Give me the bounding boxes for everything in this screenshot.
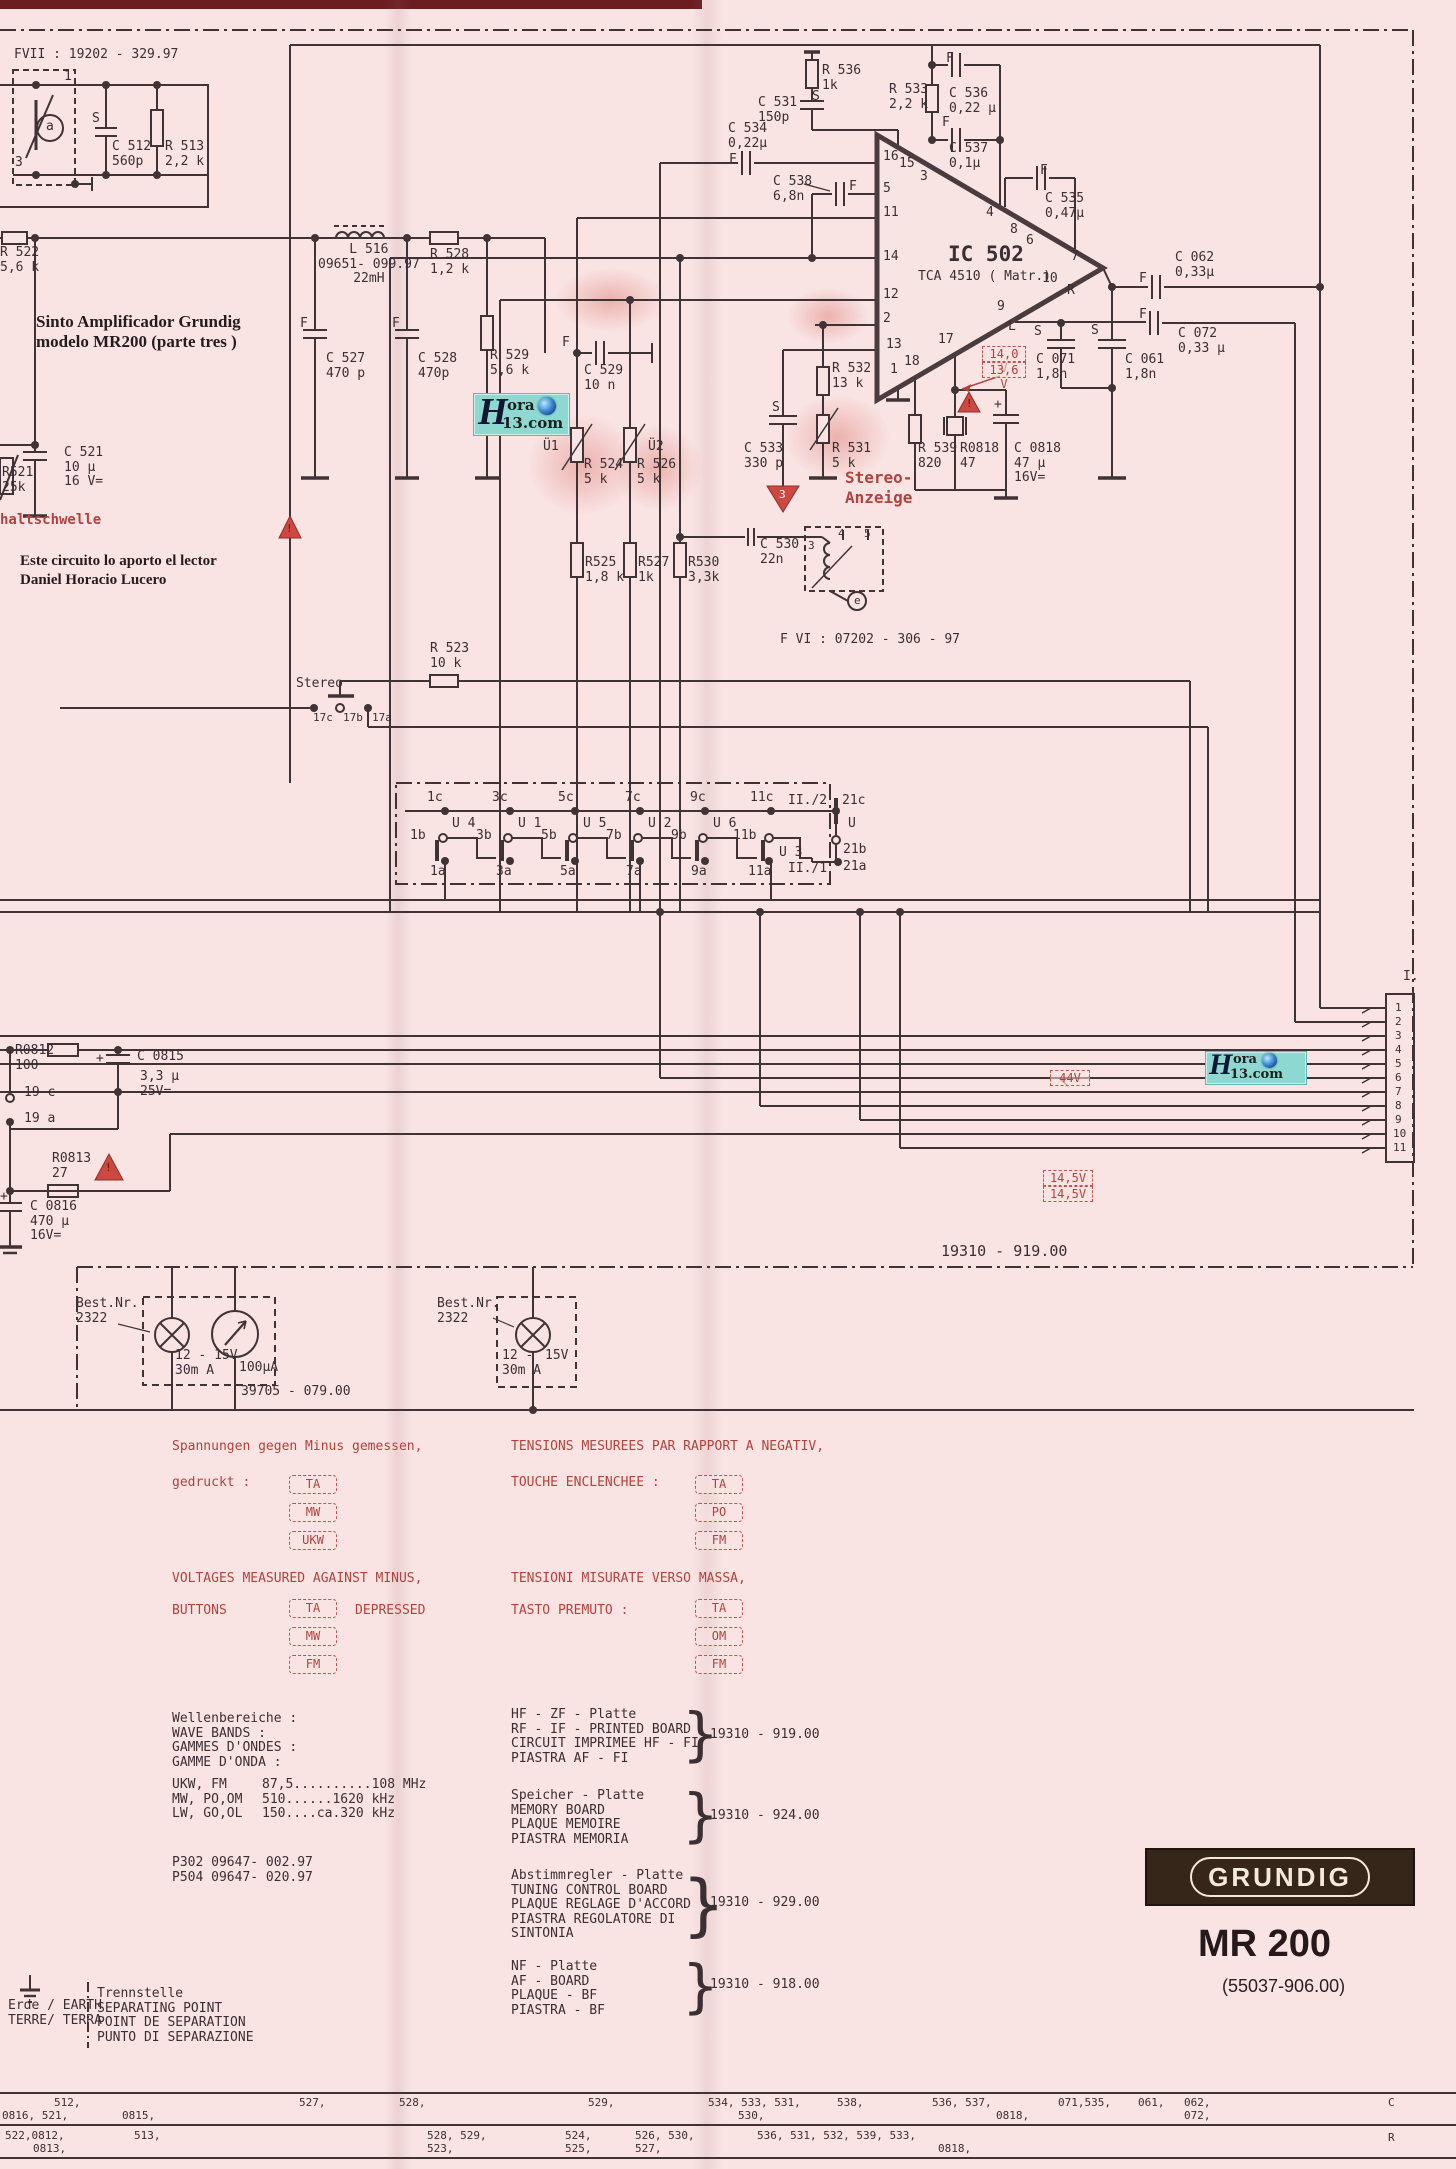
- contact-9b: 9b: [671, 829, 687, 844]
- index-0818: 0818,: [996, 2110, 1029, 2122]
- index-530: 530,: [738, 2110, 765, 2122]
- button-po-fr: PO: [695, 1503, 743, 1522]
- label-plus-c0818: +: [994, 398, 1002, 413]
- contact-17a: 17a: [372, 712, 392, 724]
- button-ukw-de: UKW: [289, 1531, 337, 1550]
- contact-1a: 1a: [430, 865, 446, 880]
- label-f-c537: F: [942, 116, 950, 131]
- index-528: 528,: [399, 2097, 426, 2109]
- label-wellenbereiche: Wellenbereiche : WAVE BANDS : GAMMES D'O…: [172, 1712, 297, 1770]
- note-buttons: BUTTONS: [172, 1604, 227, 1619]
- label-u3: U 3: [779, 846, 802, 861]
- label-fvi: F VI : 07202 - 306 - 97: [780, 633, 960, 648]
- label-c527: C 527 470 p: [326, 352, 365, 381]
- connector-pin-10: 10: [1393, 1128, 1406, 1140]
- pin-12: 12: [883, 288, 899, 303]
- label-u1: Ü1: [543, 440, 559, 455]
- pin-13: 13: [886, 338, 902, 353]
- label-bestnr-2: Best.Nr. 2322: [437, 1297, 500, 1326]
- label-c528: C 528 470p: [418, 352, 457, 381]
- label-trennstelle: Trennstelle SEPARATING POINT POINT DE SE…: [97, 1987, 254, 2045]
- button-ta-en: TA: [289, 1599, 337, 1618]
- contact-17b: 17b: [343, 712, 363, 724]
- pin-l: L: [1008, 320, 1016, 335]
- contact-5c: 5c: [558, 791, 574, 806]
- index-534-533-531: 534, 533, 531,: [708, 2097, 801, 2109]
- label-s-c533: S: [772, 401, 780, 416]
- label-pot-pin1: 1: [64, 70, 72, 85]
- warning-triangle-exclamation-2: !: [105, 1162, 112, 1174]
- pin-3: 3: [920, 170, 928, 185]
- index-536-537: 536, 537,: [932, 2097, 992, 2109]
- model-mr200: MR 200: [1198, 1924, 1331, 1964]
- note-tasto: TASTO PREMUTO :: [511, 1604, 628, 1619]
- label-c0815-value: 3,3 µ 25V=: [140, 1070, 179, 1099]
- label-f-c536-top: F: [946, 52, 954, 67]
- grundig-logo: GRUNDIG: [1145, 1848, 1415, 1906]
- watermark-globe-icon-2: [1262, 1053, 1277, 1068]
- note-depressed: DEPRESSED: [355, 1604, 425, 1619]
- label-s-r536: S: [812, 90, 820, 105]
- connector-pin-6: 6: [1395, 1072, 1402, 1084]
- warning-triangle-exclamation: !: [966, 398, 973, 410]
- label-c535: C 535 0,47µ: [1045, 192, 1084, 221]
- label-f-c535: F: [1040, 164, 1048, 179]
- contact-1b: 1b: [410, 829, 426, 844]
- junction-dots: [6, 61, 1324, 1414]
- button-om-it: OM: [695, 1627, 743, 1646]
- index-0818-b: 0818,: [938, 2143, 971, 2155]
- pin-1: 1: [890, 363, 898, 378]
- label-fvii: FVII : 19202 - 329.97: [14, 48, 178, 63]
- index-071-535: 071,535,: [1058, 2097, 1111, 2109]
- contact-21b: 21b: [843, 843, 866, 858]
- pin-s: S: [1034, 325, 1042, 340]
- contact-9c: 9c: [690, 791, 706, 806]
- label-c0818: C 0818 47 µ 16V=: [1014, 442, 1061, 486]
- label-u2: Ü2: [648, 440, 664, 455]
- wires: [0, 45, 1456, 2158]
- label-u2-switch: U 2: [648, 817, 671, 832]
- connector-pin-1: 1: [1395, 1002, 1402, 1014]
- watermark-ora: ora: [507, 396, 535, 414]
- label-f-c534: F: [729, 153, 737, 168]
- label-r527: R527 1k: [638, 556, 669, 585]
- note-gedruckt: gedruckt :: [172, 1476, 250, 1491]
- label-r531: R 531 5 k: [832, 442, 871, 471]
- voltage-14-5-b: 14,5V: [1043, 1186, 1093, 1202]
- label-bands: UKW, FM MW, PO,OM LW, GO,OL: [172, 1778, 242, 1822]
- index-072: 072,: [1184, 2110, 1211, 2122]
- index-r: R: [1388, 2132, 1395, 2144]
- label-trafo-e: e: [854, 595, 861, 607]
- pin-18: 18: [904, 355, 920, 370]
- label-c530: C 530 22n: [760, 538, 799, 567]
- label-39705: 39705 - 079.00: [241, 1385, 351, 1400]
- index-527-b: 527,: [635, 2143, 662, 2155]
- label-r521: R521 25k: [2, 466, 33, 495]
- watermark-hora13-1: H ora 13.com: [473, 393, 570, 436]
- button-ta-de: TA: [289, 1475, 337, 1494]
- pin-11: 11: [883, 206, 899, 221]
- label-n924: 19310 - 924.00: [710, 1809, 820, 1824]
- watermark-h-2: H: [1209, 1048, 1232, 1082]
- pin-6: 6: [1026, 234, 1034, 249]
- index-522-0812: 522,0812,: [5, 2130, 65, 2142]
- index-526-530: 526, 530,: [635, 2130, 695, 2142]
- label-speicher-platte: Speicher - Platte MEMORY BOARD PLAQUE ME…: [511, 1789, 644, 1847]
- note-tensioni: TENSIONI MISURATE VERSO MASSA,: [511, 1572, 746, 1587]
- warning-triangle-exclamation-3: !: [286, 523, 293, 535]
- label-r0813: R0813 27: [52, 1152, 91, 1181]
- note-touche: TOUCHE ENCLENCHEE :: [511, 1476, 660, 1491]
- index-513: 513,: [134, 2130, 161, 2142]
- label-n918: 19310 - 918.00: [710, 1978, 820, 1993]
- label-c0815: C 0815: [137, 1050, 184, 1065]
- note-tensions: TENSIONS MESUREES PAR RAPPORT A NEGATIV,: [511, 1440, 824, 1455]
- pin-17: 17: [938, 333, 954, 348]
- label-r529: R 529 5,6 k: [490, 349, 529, 378]
- connector-pin-4: 4: [1395, 1044, 1402, 1056]
- label-hf-zf-platte: HF - ZF - Platte RF - IF - PRINTED BOARD…: [511, 1708, 699, 1766]
- label-r0818: R0818 47: [960, 442, 999, 471]
- label-r522: R 522 5,6 k: [0, 246, 39, 275]
- label-c529: C 529 10 n: [584, 364, 623, 393]
- label-band-freqs: 87,5..........108 MHz 510......1620 kHz …: [262, 1778, 426, 1822]
- label-r0812: R0812 100: [15, 1044, 54, 1073]
- contact-11c: 11c: [750, 791, 773, 806]
- connector-pin-2: 2: [1395, 1016, 1402, 1028]
- label-trafo-3: 3: [808, 540, 815, 552]
- note-sinto-amplificador: Sinto Amplificador Grundig modelo MR200 …: [36, 312, 241, 352]
- connector-pin-8: 8: [1395, 1100, 1402, 1112]
- label-pot-pin3: 3: [15, 156, 23, 171]
- index-0813: 0813,: [33, 2143, 66, 2155]
- label-pot-s: S: [92, 112, 100, 127]
- index-523: 523,: [427, 2143, 454, 2155]
- contact-3a: 3a: [496, 865, 512, 880]
- contact-11b: 11b: [733, 829, 756, 844]
- contact-7a: 7a: [626, 865, 642, 880]
- contact-5a: 5a: [560, 865, 576, 880]
- contact-11a: 11a: [748, 865, 771, 880]
- label-c072: C 072 0,33 µ: [1178, 327, 1225, 356]
- pin-10: 10: [1042, 272, 1058, 287]
- watermark-globe-icon: [538, 397, 556, 415]
- label-c0816: C 0816 470 µ 16V=: [30, 1200, 77, 1244]
- pin-16: 16: [883, 150, 899, 165]
- label-r533: R 533 2,2 k: [889, 83, 928, 112]
- label-f-c072: F: [1139, 308, 1147, 323]
- contact-7b: 7b: [606, 829, 622, 844]
- contact-3b: 3b: [476, 829, 492, 844]
- label-r539: R 539 820: [918, 442, 957, 471]
- label-r528: R 528 1,2 k: [430, 248, 469, 277]
- label-s-c061: S: [1091, 324, 1099, 339]
- connector-pin-9: 9: [1395, 1114, 1402, 1126]
- contact-3c: 3c: [492, 791, 508, 806]
- label-lamp1-rating: 12 - 15V 30m A: [175, 1349, 238, 1378]
- button-mw-en: MW: [289, 1627, 337, 1646]
- index-529: 529,: [588, 2097, 615, 2109]
- button-fm-fr: FM: [695, 1531, 743, 1550]
- grundig-logo-text: GRUNDIG: [1190, 1857, 1370, 1897]
- label-f-c529: F: [562, 336, 570, 351]
- label-stereo-anzeige: Stereo- Anzeige: [845, 468, 912, 508]
- contact-9a: 9a: [691, 865, 707, 880]
- label-l516: L 516 09651- 099.97 22mH: [318, 243, 420, 287]
- pin-r: R: [1067, 284, 1075, 299]
- pin-7: 7: [1071, 250, 1079, 265]
- voltage-14-5-a: 14,5V: [1043, 1170, 1093, 1186]
- index-512: 512,: [54, 2097, 81, 2109]
- connector-pin-7: 7: [1395, 1086, 1402, 1098]
- pin-5: 5: [883, 182, 891, 197]
- voltage-14-0: 14,0 V: [982, 346, 1026, 362]
- label-n929: 19310 - 929.00: [710, 1896, 820, 1911]
- label-c521: C 521 10 µ 16 V=: [64, 446, 103, 490]
- watermark-ora-2: ora: [1233, 1052, 1257, 1067]
- watermark-site-2: 13.com: [1230, 1067, 1283, 1082]
- label-connector-i: I.: [1403, 970, 1419, 985]
- label-f-c528: F: [392, 317, 400, 332]
- watermark-site: 13.com: [502, 414, 563, 432]
- pin-14: 14: [883, 250, 899, 265]
- label-trafo-4: 4: [838, 528, 845, 540]
- contact-5b: 5b: [541, 829, 557, 844]
- connector-pin-5: 5: [1395, 1058, 1402, 1070]
- label-f-c062: F: [1139, 272, 1147, 287]
- label-trafo-5: 5: [864, 528, 871, 540]
- voltage-44: 44V: [1050, 1070, 1090, 1086]
- contact-19c: 19 c: [24, 1086, 55, 1101]
- contact-7c: 7c: [625, 791, 641, 806]
- index-528-529: 528, 529,: [427, 2130, 487, 2142]
- label-u-switch: U: [848, 817, 856, 832]
- index-061: 061,: [1138, 2097, 1165, 2109]
- button-mw-de: MW: [289, 1503, 337, 1522]
- label-r513: R 513 2,2 k: [165, 140, 204, 169]
- button-ta-fr: TA: [695, 1475, 743, 1494]
- button-fm-en: FM: [289, 1655, 337, 1674]
- label-c536: C 536 0,22 µ: [949, 87, 996, 116]
- label-c512: C 512 560p: [112, 140, 151, 169]
- label-plus-c0815: +: [96, 1052, 104, 1067]
- index-536-531-532: 536, 531, 532, 539, 533,: [757, 2130, 916, 2142]
- label-r523: R 523 10 k: [430, 642, 469, 671]
- label-ic502: IC 502: [948, 243, 1024, 265]
- label-c061: C 061 1,8n: [1125, 353, 1164, 382]
- connector-pin-3: 3: [1395, 1030, 1402, 1042]
- button-ta-it: TA: [695, 1599, 743, 1618]
- label-bestnr-1: Best.Nr. 2322: [76, 1297, 139, 1326]
- contact-21a: 21a: [843, 860, 866, 875]
- label-haltschwelle: haltschwelle: [0, 513, 101, 528]
- red-marks: [95, 376, 1068, 1180]
- voltage-13-6: 13,6 V: [982, 362, 1026, 378]
- label-u4: U 4: [452, 817, 475, 832]
- index-c: C: [1388, 2097, 1395, 2109]
- contact-17c: 17c: [313, 712, 333, 724]
- label-meter-100ua: 100µA: [239, 1361, 278, 1376]
- label-abstimmregler-platte: Abstimmregler - Platte TUNING CONTROL BO…: [511, 1869, 691, 1942]
- label-ic502-type: TCA 4510 ( Matr.): [918, 270, 1051, 285]
- index-062: 062,: [1184, 2097, 1211, 2109]
- label-r530: R530 3,3k: [688, 556, 719, 585]
- label-c538: C 538 6,8n: [773, 175, 812, 204]
- index-0816-521: 0816, 521,: [2, 2110, 68, 2122]
- note-spannungen: Spannungen gegen Minus gemessen,: [172, 1440, 422, 1455]
- pin-15: 15: [899, 157, 915, 172]
- contact-1c: 1c: [427, 791, 443, 806]
- label-n919-list: 19310 - 919.00: [710, 1728, 820, 1743]
- contact-19a: 19 a: [24, 1112, 55, 1127]
- label-c062: C 062 0,33µ: [1175, 251, 1214, 280]
- watermark-hora13-2: H ora 13.com: [1205, 1051, 1307, 1085]
- label-r536: R 536 1k: [822, 64, 861, 93]
- pin-9: 9: [997, 300, 1005, 315]
- label-ii-1: II./1: [788, 862, 827, 877]
- model-part-number: (55037-906.00): [1222, 1976, 1345, 1996]
- label-nf-platte: NF - Platte AF - BOARD PLAQUE - BF PIAST…: [511, 1960, 605, 2018]
- label-r526: R 526 5 k: [637, 458, 676, 487]
- index-527: 527,: [299, 2097, 326, 2109]
- pin-8: 8: [1010, 223, 1018, 238]
- button-fm-it: FM: [695, 1655, 743, 1674]
- note-voltages: VOLTAGES MEASURED AGAINST MINUS,: [172, 1572, 422, 1587]
- label-pot-a: a: [46, 120, 54, 135]
- label-c534: C 534 0,22µ: [728, 122, 767, 151]
- pin-2: 2: [883, 312, 891, 327]
- label-c071: C 071 1,8n: [1036, 353, 1075, 382]
- warning-triangle-3: 3: [779, 489, 786, 501]
- label-u1-switch: U 1: [518, 817, 541, 832]
- schematic-page: FVII : 19202 - 329.97 C 512 560p R 513 2…: [0, 0, 1456, 2169]
- label-lamp2-volt: 15V: [545, 1349, 568, 1364]
- label-erde: Erde / EARTH TERRE/ TERRA: [8, 1999, 102, 2028]
- label-plus-c0816: +: [0, 1190, 8, 1205]
- label-stereo: Stereo: [296, 677, 343, 692]
- label-r532: R 532 13 k: [832, 362, 871, 391]
- contact-21c: 21c: [842, 794, 865, 809]
- label-ii-2: II./2: [788, 794, 827, 809]
- pin-4: 4: [986, 206, 994, 221]
- label-c537: C 537 0,1µ: [949, 142, 988, 171]
- note-este-circuito: Este circuito lo aporto el lector Daniel…: [20, 552, 217, 590]
- connector-pin-11: 11: [1393, 1142, 1406, 1154]
- label-r524: R 524 5 k: [584, 458, 623, 487]
- label-c533: C 533 330 p: [744, 442, 783, 471]
- index-524: 524,: [565, 2130, 592, 2142]
- index-538: 538,: [837, 2097, 864, 2109]
- index-525: 525,: [565, 2143, 592, 2155]
- label-p302-p504: P302 09647- 002.97 P504 09647- 020.97: [172, 1856, 313, 1885]
- label-lamp2-rating: 12 - 30m A: [502, 1349, 541, 1378]
- label-f-c538: F: [849, 180, 857, 195]
- label-r525: R525 1,8 k: [585, 556, 624, 585]
- label-board-919: 19310 - 919.00: [941, 1244, 1067, 1259]
- label-u6: U 6: [713, 817, 736, 832]
- label-f-c527: F: [300, 317, 308, 332]
- label-u5: U 5: [583, 817, 606, 832]
- index-0815: 0815,: [122, 2110, 155, 2122]
